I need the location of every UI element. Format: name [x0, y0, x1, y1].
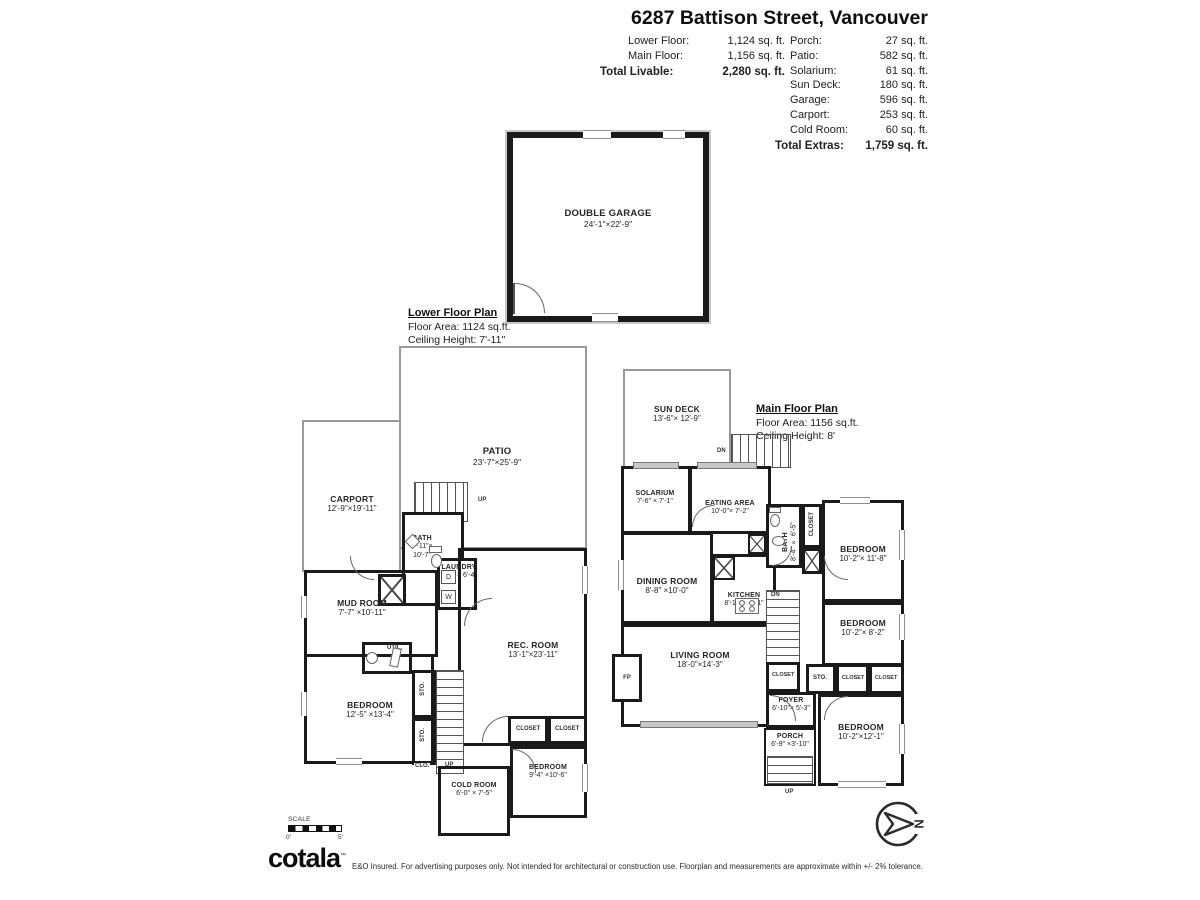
room-label-patio: PATIO 23'-7"×25'-9" [442, 446, 552, 467]
room-name: COLD ROOM [444, 782, 504, 790]
toilet-icon [431, 554, 442, 568]
stat-value: 582 sq. ft. [880, 49, 928, 64]
room-dims: 9'-4" ×10'-6" [514, 772, 582, 780]
stat-label: Solarium: [790, 64, 836, 79]
room-name: SOLARIUM [623, 490, 687, 498]
closet-label: CLOSET [771, 672, 795, 678]
stat-row-solarium: Solarium: 61 sq. ft. [790, 64, 928, 79]
room-label-solarium: SOLARIUM 7'-6" × 7'-1" [623, 490, 687, 507]
util-sink-icon [366, 652, 378, 664]
dryer-icon: D [441, 570, 456, 584]
room-dims: 13'-1"×23'-11" [478, 650, 588, 659]
room-dims: 12'-5" ×13'-4" [325, 710, 415, 719]
room-name: BEDROOM [325, 700, 415, 710]
closet-label: CLOSET [874, 675, 898, 681]
room-label-mud-room: MUD ROOM 7'-7" ×10'-11" [312, 598, 412, 617]
room-dims: 13'-6"× 12'-9" [627, 414, 727, 423]
stat-value: 61 sq. ft. [886, 64, 928, 79]
room-label-sun-deck: SUN DECK 13'-6"× 12'-9" [627, 404, 727, 423]
room-dims: 10'-2"× 8'-2" [830, 628, 896, 637]
stat-row-main-floor: Main Floor: 1,156 sq. ft. [628, 49, 785, 64]
window [582, 566, 588, 594]
compass-icon: N [872, 798, 928, 850]
stat-row-porch: Porch: 27 sq. ft. [790, 34, 928, 49]
stat-row-garage: Garage: 596 sq. ft. [790, 93, 928, 108]
patio-door-sill [697, 462, 757, 469]
living-room [621, 624, 769, 727]
window [582, 764, 588, 792]
stat-value: 253 sq. ft. [880, 108, 928, 123]
stat-label: Carport: [790, 108, 830, 123]
lower-plan-caption: Lower Floor Plan Floor Area: 1124 sq.ft.… [408, 306, 511, 348]
room-label-bedroom-se: BEDROOM 10'-2"×12'-1" [828, 722, 894, 741]
stairs-up-label: UP [784, 789, 794, 795]
compass-north-label: N [912, 819, 927, 828]
toilet-tank-icon [769, 507, 781, 513]
room-name: LIVING ROOM [648, 650, 752, 660]
room-label-dining-room: DINING ROOM 8'-8" ×10'-0" [625, 576, 709, 595]
sink-icon [772, 536, 785, 546]
right-stats-block: Porch: 27 sq. ft. Patio: 582 sq. ft. Sol… [790, 34, 928, 138]
window [899, 530, 905, 560]
fridge-icon [748, 534, 766, 554]
stat-value: 596 sq. ft. [880, 93, 928, 108]
stat-value: 1,156 sq. ft. [728, 49, 785, 64]
lower-plan-ceiling: Ceiling Height: 7'-11" [408, 334, 505, 346]
total-livable: Total Livable: 2,280 sq. ft. [600, 65, 785, 80]
room-name: PORCH [766, 733, 814, 741]
dryer-letter: D [446, 574, 451, 581]
stat-row-patio: Patio: 582 sq. ft. [790, 49, 928, 64]
window [899, 724, 905, 754]
scale-start: 0' [286, 834, 291, 841]
brand-tm: ™ [340, 853, 345, 859]
main-plan-area: Floor Area: 1156 sq.ft. [756, 417, 859, 429]
sliding-door [640, 721, 758, 728]
stat-label: Patio: [790, 49, 818, 64]
room-label-double-garage: DOUBLE GARAGE 24'-1"×22'-9" [537, 208, 679, 229]
fp-label: FP [622, 675, 632, 681]
window [899, 614, 905, 640]
garage-window [663, 130, 685, 139]
brand-logo: cotala™ [268, 843, 345, 874]
stat-value: 60 sq. ft. [886, 123, 928, 138]
kitchen-sink-icon [713, 556, 735, 580]
porch-stairs [767, 756, 813, 784]
stat-row-total-extras: Total Extras: 1,759 sq. ft. [775, 139, 928, 154]
window [838, 781, 886, 788]
stat-label: Lower Floor: [628, 34, 689, 49]
chimney-xbox [802, 548, 822, 574]
sto-label: STO. [419, 728, 427, 742]
room-dims: 18'-0"×14'-3" [648, 660, 752, 669]
room-dims: 24'-1"×22'-9" [537, 219, 679, 229]
room-name: SUN DECK [627, 404, 727, 414]
closet-label: CLOSET [554, 726, 580, 732]
cold-room [438, 766, 510, 836]
lower-plan-title: Lower Floor Plan [408, 307, 497, 319]
toilet-tank-icon [429, 546, 442, 553]
washer-letter: W [445, 594, 452, 601]
toilet-icon [770, 514, 780, 527]
room-name: DOUBLE GARAGE [537, 208, 679, 219]
page-title: 6287 Battison Street, Vancouver [420, 7, 928, 30]
stat-label: Main Floor: [628, 49, 683, 64]
lower-plan-area: Floor Area: 1124 sq.ft. [408, 321, 511, 333]
room-name: PATIO [442, 446, 552, 457]
room-label-rec-room: REC. ROOM 13'-1"×23'-11" [478, 640, 588, 659]
total-extras: Total Extras: 1,759 sq. ft. [775, 139, 928, 154]
stat-value: 1,759 sq. ft. [865, 139, 928, 154]
garage-window [583, 130, 611, 139]
stat-label: Total Extras: [775, 139, 844, 154]
window [618, 560, 624, 590]
room-label-carport: CARPORT 12'-9"×19'-11" [306, 494, 398, 513]
sto-label: STO. [812, 675, 828, 681]
room-label-porch: PORCH 6'-9" ×3'-10" [766, 733, 814, 750]
washer-icon: W [441, 590, 456, 604]
lower-stairs [436, 670, 464, 774]
stat-label: Sun Deck: [790, 78, 841, 93]
stat-label: Total Livable: [600, 65, 673, 80]
room-dims: 10'-2"×12'-1" [828, 732, 894, 741]
stat-label: Porch: [790, 34, 822, 49]
room-label-cold-room: COLD ROOM 6'-0" × 7'-5" [444, 782, 504, 799]
closet-label: CLOSET [808, 512, 816, 536]
room-dims: 6'-9" ×3'-10" [766, 741, 814, 749]
room-name: DINING ROOM [625, 576, 709, 586]
brand-name: cotala [268, 843, 340, 873]
patio-door-sill [633, 462, 679, 469]
room-name: REC. ROOM [478, 640, 588, 650]
garage-door-leaf [513, 283, 515, 314]
left-stats-block: Lower Floor: 1,124 sq. ft. Main Floor: 1… [628, 34, 785, 64]
room-dims: 12'-9"×19'-11" [306, 504, 398, 513]
window [840, 497, 870, 504]
main-plan-title: Main Floor Plan [756, 403, 838, 415]
room-name: CARPORT [306, 494, 398, 504]
stat-value: 1,124 sq. ft. [728, 34, 785, 49]
room-dims: 6'-0" × 7'-5" [444, 790, 504, 798]
stat-value: 27 sq. ft. [886, 34, 928, 49]
scale-end: 5' [338, 834, 343, 841]
stat-value: 180 sq. ft. [880, 78, 928, 93]
room-dims: 7'-7" ×10'-11" [312, 608, 412, 617]
room-dims: 8'-8" ×10'-0" [625, 586, 709, 595]
room-name: BEDROOM [830, 544, 896, 554]
window [301, 692, 307, 716]
closet-label: CLOSET [515, 726, 541, 732]
clo-label: CLO. [414, 763, 430, 769]
room-label-lower-bedroom1: BEDROOM 12'-5" ×13'-4" [325, 700, 415, 719]
stairs-up-label: UP [477, 497, 487, 503]
stat-value: 2,280 sq. ft. [722, 65, 785, 80]
room-label-bedroom-e: BEDROOM 10'-2"× 8'-2" [830, 618, 896, 637]
room-dims: 23'-7"×25'-9" [442, 457, 552, 467]
stairs-dn-label: DN [716, 448, 727, 454]
stat-row-carport: Carport: 253 sq. ft. [790, 108, 928, 123]
room-label-living-room: LIVING ROOM 18'-0"×14'-3" [648, 650, 752, 669]
window [301, 596, 307, 618]
stat-row-coldroom: Cold Room: 60 sq. ft. [790, 123, 928, 138]
disclaimer-text: E&O Insured. For advertising purposes on… [352, 862, 923, 871]
closet-label: CLOSET [841, 675, 865, 681]
sto-label: STO. [419, 682, 427, 696]
stat-row-lower-floor: Lower Floor: 1,124 sq. ft. [628, 34, 785, 49]
room-dims: 8'-4" × 6'-5" [790, 520, 798, 564]
fireplace: FP [612, 654, 642, 702]
room-name: BEDROOM [830, 618, 896, 628]
garage-window [592, 313, 618, 322]
stat-row-total-livable: Total Livable: 2,280 sq. ft. [600, 65, 785, 80]
stat-label: Garage: [790, 93, 830, 108]
stove-icon [735, 598, 759, 614]
window [336, 758, 362, 765]
stat-row-sundeck: Sun Deck: 180 sq. ft. [790, 78, 928, 93]
stat-label: Cold Room: [790, 123, 848, 138]
room-dims: 7'-6" × 7'-1" [623, 498, 687, 506]
scale-label: SCALE [288, 816, 311, 823]
room-name: BEDROOM [828, 722, 894, 732]
scale-bar [288, 825, 342, 832]
room-name: MUD ROOM [312, 598, 412, 608]
